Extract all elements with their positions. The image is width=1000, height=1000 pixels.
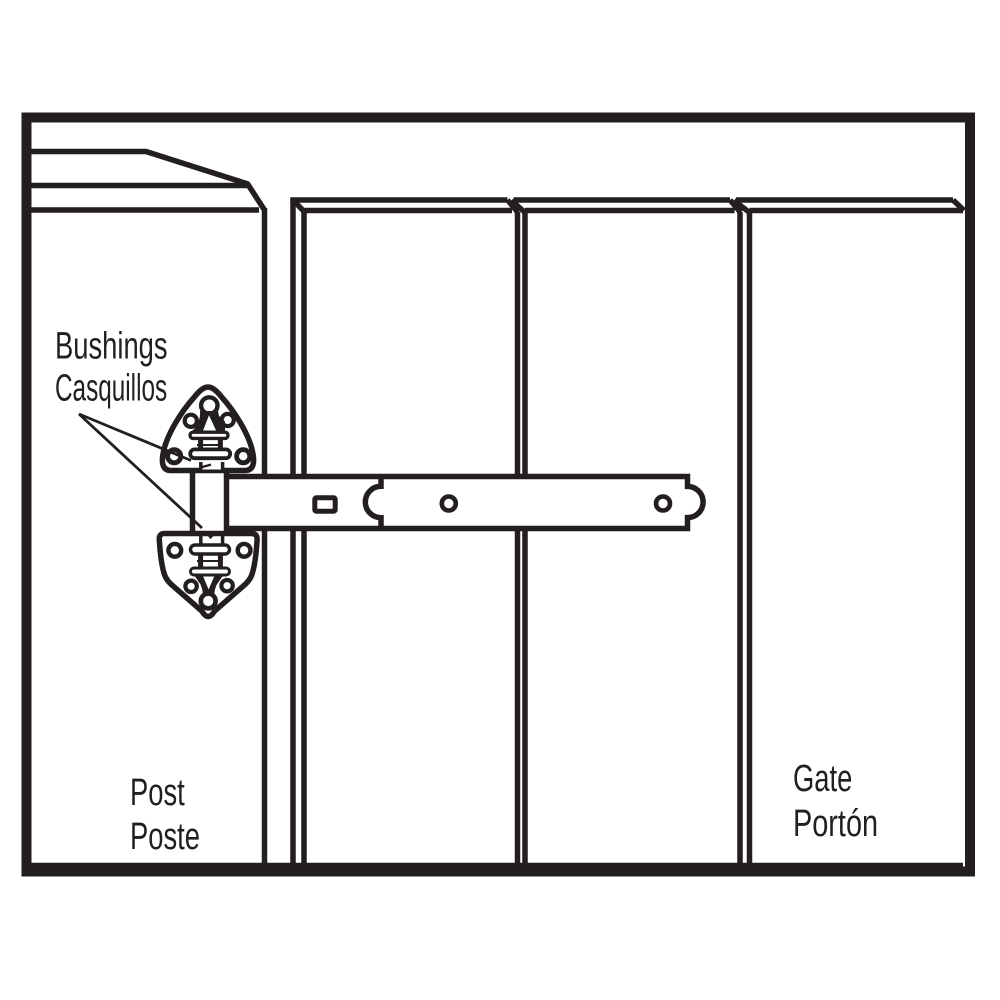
svg-text:Post: Post xyxy=(130,772,185,814)
svg-text:Casquillos: Casquillos xyxy=(55,366,167,409)
svg-text:Gate: Gate xyxy=(793,758,852,800)
svg-text:Poste: Poste xyxy=(130,816,200,858)
svg-text:Portón: Portón xyxy=(793,802,878,845)
svg-text:Bushings: Bushings xyxy=(55,325,168,367)
